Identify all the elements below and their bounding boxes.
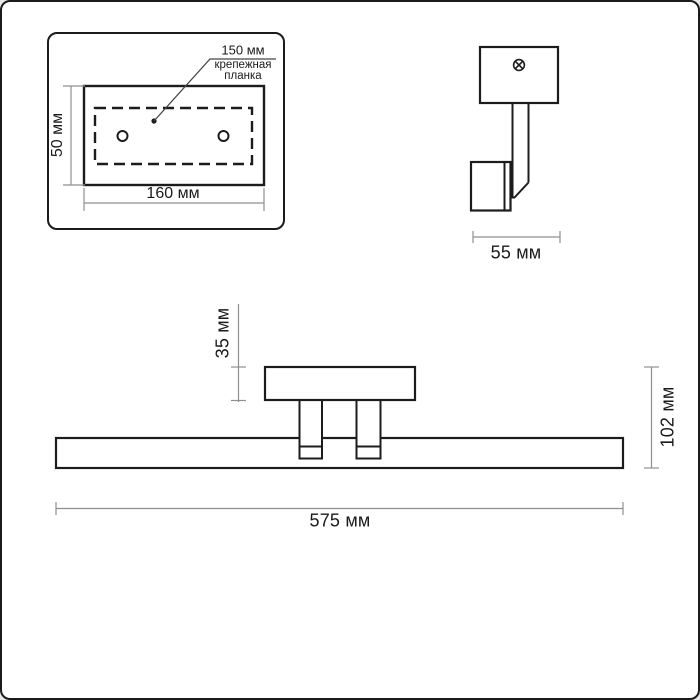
dimension-label-hole-spacing: 150 мм: [221, 43, 264, 58]
wall-plate-side: [480, 47, 558, 103]
bracket-arm-side: [509, 103, 529, 198]
dimension-label-overall-height: 102 мм: [658, 387, 679, 448]
drawing-linework: [2, 2, 700, 700]
mounting-hole-left: [118, 131, 128, 141]
dimension-label-bracket-height: 35 мм: [213, 308, 234, 359]
callout-label-mounting-strip: крепежная планка: [215, 60, 272, 82]
dimension-label-length: 575 мм: [310, 511, 371, 532]
front-view: [56, 304, 659, 515]
callout-line-2: планка: [215, 71, 272, 82]
dimension-label-plate-width: 160 мм: [146, 185, 199, 203]
technical-drawing-page: 150 мм крепежная планка 50 мм 160 мм 55 …: [0, 0, 700, 700]
wall-plate-front: [265, 367, 415, 400]
side-view: [471, 47, 560, 243]
mounting-hole-right: [219, 131, 229, 141]
mounting-plate-outline: [84, 86, 264, 185]
dimension-55mm-lines: [473, 231, 560, 243]
dimension-label-plate-height: 50 мм: [49, 113, 67, 157]
dimension-label-depth: 55 мм: [491, 243, 542, 264]
lamp-bar-front: [56, 438, 623, 468]
